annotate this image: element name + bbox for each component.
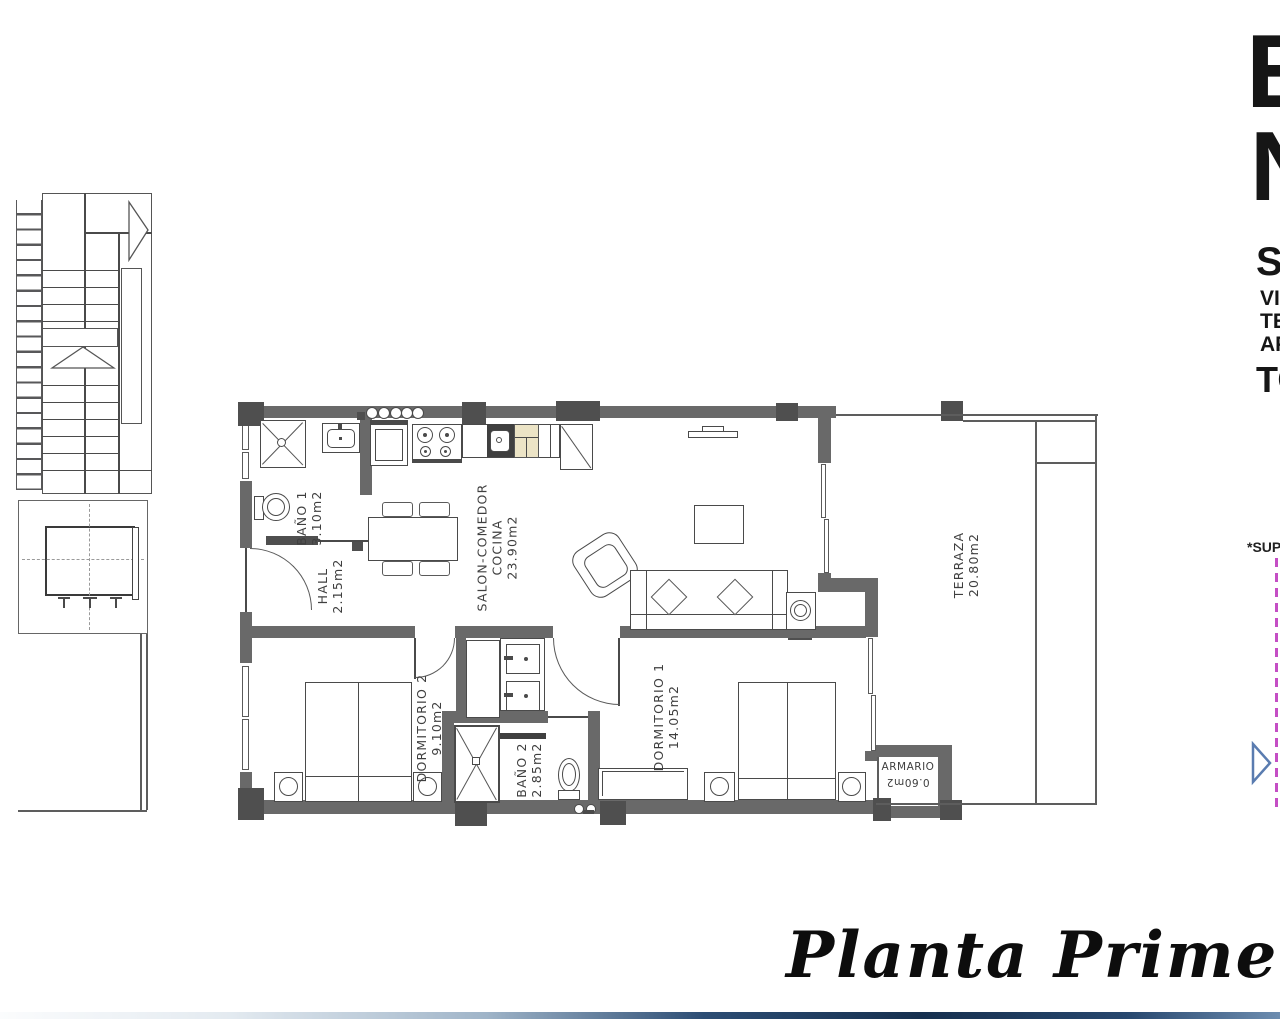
bed-center-line	[358, 683, 359, 801]
landing-boundary-line	[140, 634, 142, 810]
bano2-label: BAÑO 22.85m2	[514, 725, 544, 815]
salon-label: SALON-COMEDORCOCINA23.90m2	[475, 473, 520, 623]
dormitorio1-label: DORMITORIO 114.05m2	[651, 647, 681, 787]
wall-closet-left	[456, 638, 466, 720]
dormitorio2-label: DORMITORIO 29.10m2	[414, 663, 444, 793]
nightstand-lamp	[842, 777, 861, 796]
kitchen-vent-circle	[378, 407, 390, 419]
side-table-lamp-inner	[794, 604, 807, 617]
edge-note: *SUP	[1247, 539, 1280, 555]
pillar	[873, 798, 891, 821]
window-sash	[242, 452, 249, 479]
pillar	[600, 801, 626, 825]
elevator-buffer	[63, 599, 65, 608]
bed-fold-line	[739, 778, 835, 779]
window-sash	[242, 719, 249, 770]
stair-divider-line	[118, 232, 120, 494]
sink-drain-dot	[339, 437, 342, 440]
hall-closet	[466, 640, 500, 718]
terraza-label: TERRAZA20.80m2	[951, 510, 981, 620]
elevator-car	[45, 526, 135, 596]
edge-list-item: VI	[1260, 290, 1280, 309]
stair-step	[42, 287, 118, 288]
elevator-centerline	[22, 559, 144, 560]
dining-chair	[382, 561, 413, 576]
wall-right-dormitorio1	[865, 590, 878, 637]
sofa-armrest-line	[646, 571, 647, 629]
kitchen-vent-circle	[366, 407, 378, 419]
vanity-drain-dot	[524, 694, 528, 698]
sofa-armrest-line	[772, 571, 773, 629]
dormitorio1-door-swing	[553, 638, 620, 705]
pillar	[556, 401, 600, 421]
pillar	[238, 788, 264, 820]
toilet-bowl	[562, 763, 576, 786]
wall-bottom	[240, 800, 876, 814]
stair-step	[42, 419, 118, 420]
edge-heading-letter: N	[1250, 122, 1280, 210]
floor-plan-page: ARMARIO 0.60m2 BAÑO 13.10m2 HALL2.15m2	[0, 0, 1280, 1024]
pillar	[455, 800, 487, 826]
terrace-railing-post	[1036, 462, 1095, 464]
elevator-centerline	[89, 504, 90, 630]
window-sash	[242, 666, 249, 717]
dining-chair	[382, 502, 413, 517]
terrace-edge-top-inner	[963, 420, 1096, 422]
bed-center-line	[787, 683, 788, 799]
counter-divider	[550, 424, 551, 458]
dining-table	[368, 517, 458, 561]
edge-subheading: TO	[1256, 364, 1280, 396]
armario-area-label: 0.60m2	[884, 776, 932, 788]
edge-heading-letter: E	[1246, 26, 1280, 120]
vanity-tap	[504, 693, 513, 697]
nightstand-lamp	[710, 777, 729, 796]
dining-chair	[419, 502, 450, 517]
bano2-door-track	[548, 716, 588, 718]
tv-wall-unit	[702, 426, 724, 432]
shower-drain	[277, 438, 286, 447]
hall-label: HALL2.15m2	[315, 541, 345, 631]
stair-step	[42, 270, 118, 271]
edge-list-item: TE	[1260, 313, 1280, 332]
stair-direction-arrow-icon	[128, 200, 150, 262]
kitchen-sink-drain	[496, 437, 502, 443]
kitchen-vent-circle	[412, 407, 424, 419]
stair-step	[42, 385, 118, 386]
edge-subheading: SU	[1256, 244, 1280, 280]
stair-rail	[121, 268, 142, 424]
dining-chair	[419, 561, 450, 576]
sliding-door-sash	[868, 638, 873, 694]
stove-front-edge	[412, 459, 462, 463]
fridge-inner	[375, 429, 403, 461]
sink-tap	[338, 424, 342, 429]
sliding-door-sash	[821, 464, 826, 518]
bed-fold-line	[306, 776, 411, 777]
vanity-drain-dot	[524, 657, 528, 661]
stair-step	[42, 470, 152, 471]
entrance-door-leaf	[245, 548, 247, 612]
burner-dot	[423, 433, 427, 437]
pillar	[941, 401, 963, 421]
elevator-door-rail	[132, 527, 139, 600]
vanity-tap	[504, 656, 513, 660]
wall-right-living	[818, 414, 831, 463]
burner-dot	[444, 450, 447, 453]
section-cut-line	[1275, 558, 1278, 812]
stair-step	[42, 436, 118, 437]
armario-label: ARMARIO	[878, 761, 938, 773]
coffee-table	[694, 505, 744, 544]
toilet-bowl	[267, 498, 285, 516]
tv-wall-unit	[688, 431, 738, 438]
elevator-buffer	[89, 599, 91, 608]
sofa-back-line	[631, 614, 787, 615]
stair-step	[42, 453, 118, 454]
terrace-railing-inner	[1035, 420, 1037, 804]
terrace-edge-top	[836, 414, 1098, 416]
wall-interior	[455, 626, 553, 638]
stair-step	[42, 304, 118, 305]
window-sash	[242, 424, 249, 450]
terrace-edge-bottom	[876, 803, 1097, 805]
elevator-buffer	[115, 599, 117, 608]
shower-drain	[472, 757, 480, 765]
stair-hatch-strip	[16, 200, 42, 490]
stair-step	[42, 402, 118, 403]
sliding-door-sash	[824, 519, 829, 573]
dishwasher-line	[526, 438, 527, 457]
pillar	[776, 403, 798, 421]
edge-list-item: AP	[1260, 336, 1280, 355]
terrace-railing-outer	[1095, 414, 1097, 805]
sliding-door-sash	[871, 695, 876, 751]
stair-step	[42, 321, 118, 322]
threshold-mark	[583, 810, 594, 814]
pillar	[462, 402, 486, 424]
landing-boundary-line	[146, 634, 148, 810]
wall-top	[240, 406, 836, 418]
stair-up-arrow-icon	[50, 345, 116, 370]
bottom-gradient-bar	[0, 1012, 1280, 1019]
plan-title: Planta Primera	[786, 918, 1280, 993]
burner-dot	[424, 450, 427, 453]
kitchen-vent-block	[357, 412, 365, 420]
landing-boundary-line	[18, 810, 147, 812]
section-marker-arrow-icon	[1250, 741, 1274, 787]
nightstand-lamp	[279, 777, 298, 796]
burner-dot	[445, 433, 449, 437]
toilet-tank	[558, 790, 580, 800]
